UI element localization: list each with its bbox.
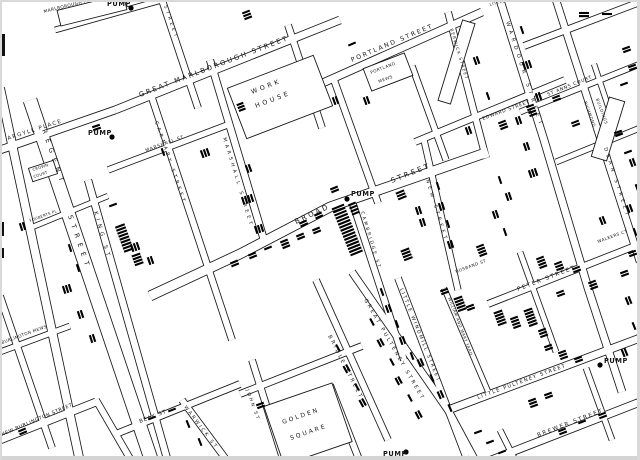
snow-cholera-map: GREAT MARLBOROUGH STREETPORTLAND STREETA…	[0, 0, 640, 460]
pump-marker	[344, 196, 349, 201]
pump-label: PUMP	[88, 129, 112, 137]
pump-label: PUMP	[604, 357, 628, 365]
pump-label: PUMP	[351, 190, 375, 198]
death-bar	[579, 15, 589, 17]
death-bar	[602, 13, 612, 15]
pump-marker	[597, 362, 602, 367]
map-canvas: GREAT MARLBOROUGH STREETPORTLAND STREETA…	[0, 0, 640, 460]
death-bar	[579, 12, 589, 14]
death-bar-cluster	[602, 13, 612, 15]
